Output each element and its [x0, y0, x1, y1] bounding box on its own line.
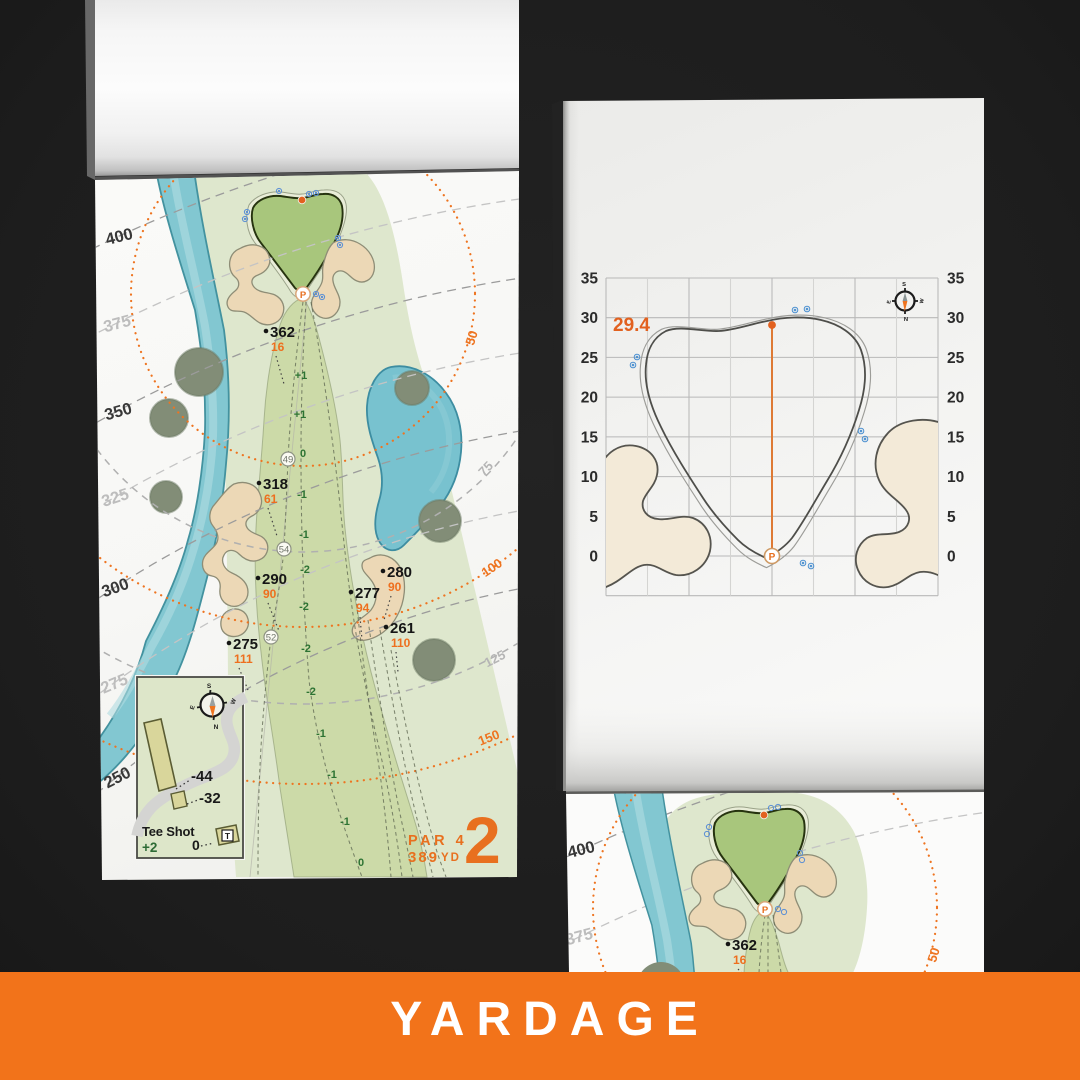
- svg-text:5: 5: [589, 509, 598, 526]
- svg-text:N: N: [904, 317, 908, 323]
- svg-text:25: 25: [947, 350, 965, 367]
- svg-text:362: 362: [732, 937, 757, 954]
- svg-text:P: P: [769, 552, 776, 563]
- svg-text:10: 10: [947, 469, 964, 486]
- svg-text:10: 10: [581, 469, 598, 486]
- svg-text:0: 0: [947, 549, 956, 566]
- svg-text:25: 25: [581, 350, 599, 367]
- svg-text:30: 30: [581, 310, 598, 327]
- svg-text:YARDAGE: YARDAGE: [390, 993, 710, 1046]
- svg-text:30: 30: [947, 310, 964, 327]
- svg-text:15: 15: [581, 429, 599, 446]
- svg-text:0: 0: [589, 549, 598, 566]
- svg-text:16: 16: [733, 953, 747, 967]
- svg-text:35: 35: [581, 271, 599, 288]
- svg-text:35: 35: [947, 271, 965, 288]
- svg-text:15: 15: [947, 429, 965, 446]
- svg-text:P: P: [762, 905, 769, 916]
- svg-text:20: 20: [581, 390, 598, 407]
- svg-text:S: S: [902, 282, 906, 288]
- svg-text:20: 20: [947, 390, 964, 407]
- svg-text:5: 5: [947, 509, 956, 526]
- svg-text:29.4: 29.4: [613, 315, 650, 336]
